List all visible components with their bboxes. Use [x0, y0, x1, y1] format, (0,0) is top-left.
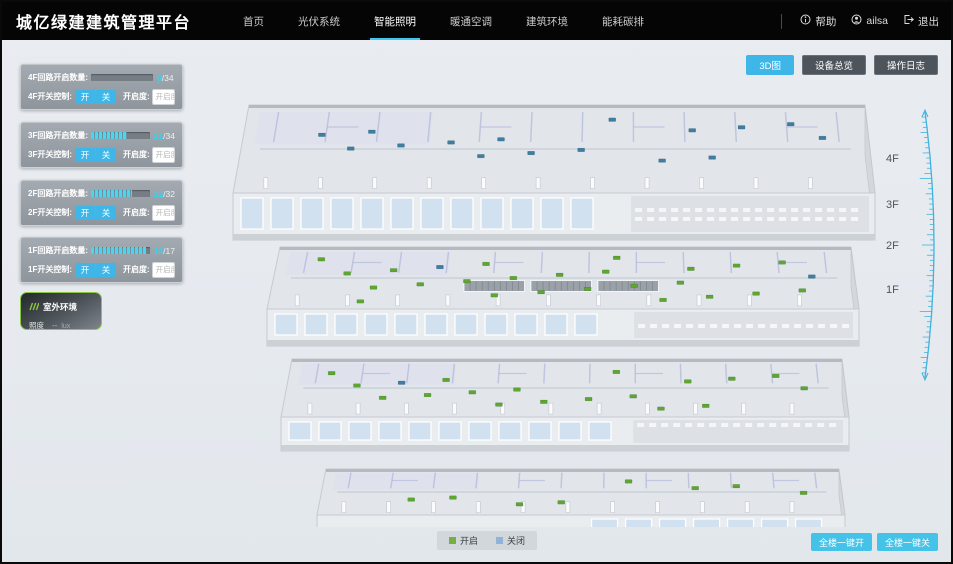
dim-input-group-1f: %	[152, 262, 175, 278]
switch-on-button-1f[interactable]: 开	[75, 263, 95, 277]
main-menu: 首页 光伏系统 智能照明 暖通空调 建筑环境 能耗碳排	[239, 2, 648, 40]
circuit-progress-3f	[91, 132, 150, 139]
view-toolbar: 3D图 设备总览 操作日志	[746, 55, 938, 75]
illuminance-value: --	[52, 321, 57, 330]
switch-label-3f: 3F开关控制:	[28, 149, 72, 160]
circuit-count-1f: 16/17	[154, 246, 175, 256]
legend-closed: 关闭	[496, 534, 525, 547]
dim-input-1f[interactable]	[153, 263, 175, 277]
switch-off-button-4f[interactable]: 关	[96, 90, 116, 104]
switch-off-button-1f[interactable]: 关	[96, 263, 116, 277]
app-title: 城亿绿建建筑管理平台	[16, 9, 191, 33]
outdoor-env-panel: 室外环境 照度 -- lux	[20, 292, 102, 330]
dim-label-1f: 开启度:	[123, 264, 150, 275]
circuit-count-label-4f: 4F回路开启数量:	[28, 72, 88, 83]
floor-panel-4f: 4F回路开启数量: 0/34 4F开关控制: 开 关 开启度: %	[20, 64, 183, 110]
building-3d-viewport[interactable]	[197, 97, 897, 527]
switch-label-1f: 1F开关控制:	[28, 264, 72, 275]
dim-input-3f[interactable]	[153, 148, 175, 162]
switch-group-1f: 开 关	[75, 263, 116, 277]
top-navbar: 城亿绿建建筑管理平台 首页 光伏系统 智能照明 暖通空调 建筑环境 能耗碳排 帮…	[2, 2, 951, 40]
dim-input-group-3f: %	[152, 147, 175, 163]
nav-item-home[interactable]: 首页	[239, 2, 268, 40]
switch-on-button-2f[interactable]: 开	[75, 206, 95, 220]
operation-log-button[interactable]: 操作日志	[874, 55, 938, 75]
view-3d-button[interactable]: 3D图	[746, 55, 794, 75]
floor-axis-label-1f[interactable]: 1F	[886, 284, 899, 296]
dim-input-2f[interactable]	[153, 206, 175, 220]
dim-input-group-4f: %	[152, 89, 175, 105]
device-overview-button[interactable]: 设备总览	[802, 55, 866, 75]
dim-label-2f: 开启度:	[123, 207, 150, 218]
nav-item-smart-lighting[interactable]: 智能照明	[370, 2, 420, 40]
circuit-count-label-2f: 2F回路开启数量:	[28, 188, 88, 199]
circuit-progress-4f	[91, 74, 153, 81]
floor-axis-label-3f[interactable]: 3F	[886, 199, 899, 211]
logout-icon	[903, 14, 914, 28]
circuit-count-4f: 0/34	[157, 73, 174, 83]
circuit-count-label-1f: 1F回路开启数量:	[28, 245, 88, 256]
dim-label-4f: 开启度:	[123, 91, 150, 102]
outdoor-env-icon	[29, 298, 39, 316]
floor-panel-2f: 2F回路开启数量: 22/32 2F开关控制: 开 关 开启度: %	[20, 180, 183, 226]
switch-off-button-3f[interactable]: 关	[96, 148, 116, 162]
switch-group-2f: 开 关	[75, 206, 116, 220]
switch-off-button-2f[interactable]: 关	[96, 206, 116, 220]
bulk-controls: 全楼一键开 全楼一键关	[811, 533, 938, 551]
circuit-progress-1f	[91, 247, 150, 254]
navbar-right: 帮助 ailsa 退出	[781, 14, 939, 29]
nav-item-hvac[interactable]: 暖通空调	[446, 2, 496, 40]
help-button[interactable]: 帮助	[800, 14, 836, 29]
circuit-count-3f: 21/34	[154, 131, 175, 141]
illuminance-label: 照度	[29, 320, 44, 331]
switch-group-4f: 开 关	[75, 90, 116, 104]
circuit-count-label-3f: 3F回路开启数量:	[28, 130, 88, 141]
floor-panel-3f: 3F回路开启数量: 21/34 3F开关控制: 开 关 开启度: %	[20, 122, 183, 168]
logout-button[interactable]: 退出	[903, 14, 939, 29]
nav-divider	[781, 14, 782, 29]
switch-group-3f: 开 关	[75, 148, 116, 162]
legend-open: 开启	[449, 534, 478, 547]
outdoor-env-title: 室外环境	[43, 301, 77, 313]
circuit-progress-2f	[91, 190, 150, 197]
floor-axis-label-2f[interactable]: 2F	[886, 240, 899, 252]
nav-item-pv-system[interactable]: 光伏系统	[294, 2, 344, 40]
user-icon	[851, 14, 862, 28]
app-root: 城亿绿建建筑管理平台 首页 光伏系统 智能照明 暖通空调 建筑环境 能耗碳排 帮…	[0, 0, 953, 564]
legend-closed-swatch	[496, 537, 503, 544]
help-icon	[800, 14, 811, 28]
username: ailsa	[866, 15, 888, 27]
circuit-count-2f: 22/32	[154, 189, 175, 199]
switch-label-4f: 4F开关控制:	[28, 91, 72, 102]
floor-axis-label-4f[interactable]: 4F	[886, 153, 899, 165]
dim-input-group-2f: %	[152, 205, 175, 221]
dim-label-3f: 开启度:	[123, 149, 150, 160]
switch-on-button-3f[interactable]: 开	[75, 148, 95, 162]
all-floors-off-button[interactable]: 全楼一键关	[877, 533, 938, 551]
nav-item-building-env[interactable]: 建筑环境	[522, 2, 572, 40]
all-floors-on-button[interactable]: 全楼一键开	[811, 533, 872, 551]
lighting-legend: 开启 关闭	[437, 531, 537, 550]
floor-scale-slider[interactable]	[912, 104, 948, 386]
legend-open-swatch	[449, 537, 456, 544]
user-menu[interactable]: ailsa	[851, 14, 888, 28]
switch-label-2f: 2F开关控制:	[28, 207, 72, 218]
floor-panel-1f: 1F回路开启数量: 16/17 1F开关控制: 开 关 开启度: %	[20, 237, 183, 283]
nav-item-energy-carbon[interactable]: 能耗碳排	[598, 2, 648, 40]
dim-input-4f[interactable]	[153, 90, 175, 104]
switch-on-button-4f[interactable]: 开	[75, 90, 95, 104]
illuminance-unit: lux	[61, 323, 70, 330]
